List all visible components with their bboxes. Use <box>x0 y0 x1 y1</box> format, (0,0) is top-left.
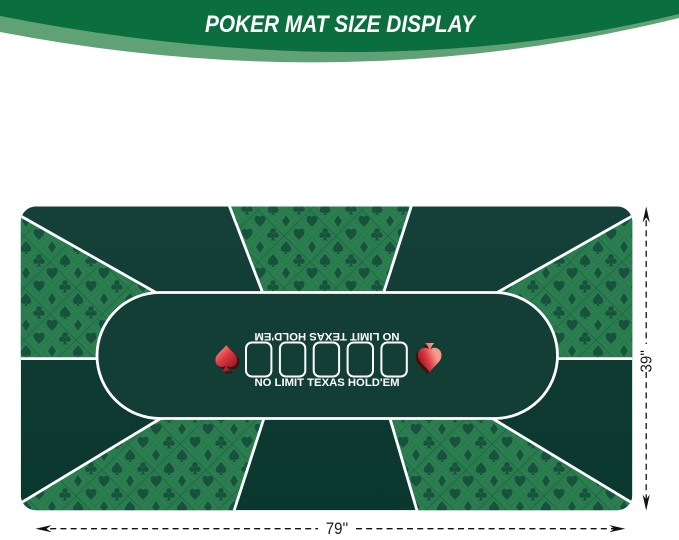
svg-text:79'': 79'' <box>326 520 349 535</box>
svg-text:39'': 39'' <box>639 350 656 373</box>
svg-text:POKER MAT SIZE DISPLAY: POKER MAT SIZE DISPLAY <box>205 11 477 38</box>
svg-text:NO LIMIT TEXAS HOLD'EM: NO LIMIT TEXAS HOLD'EM <box>255 330 400 342</box>
svg-text:NO LIMIT TEXAS HOLD'EM: NO LIMIT TEXAS HOLD'EM <box>255 377 400 389</box>
